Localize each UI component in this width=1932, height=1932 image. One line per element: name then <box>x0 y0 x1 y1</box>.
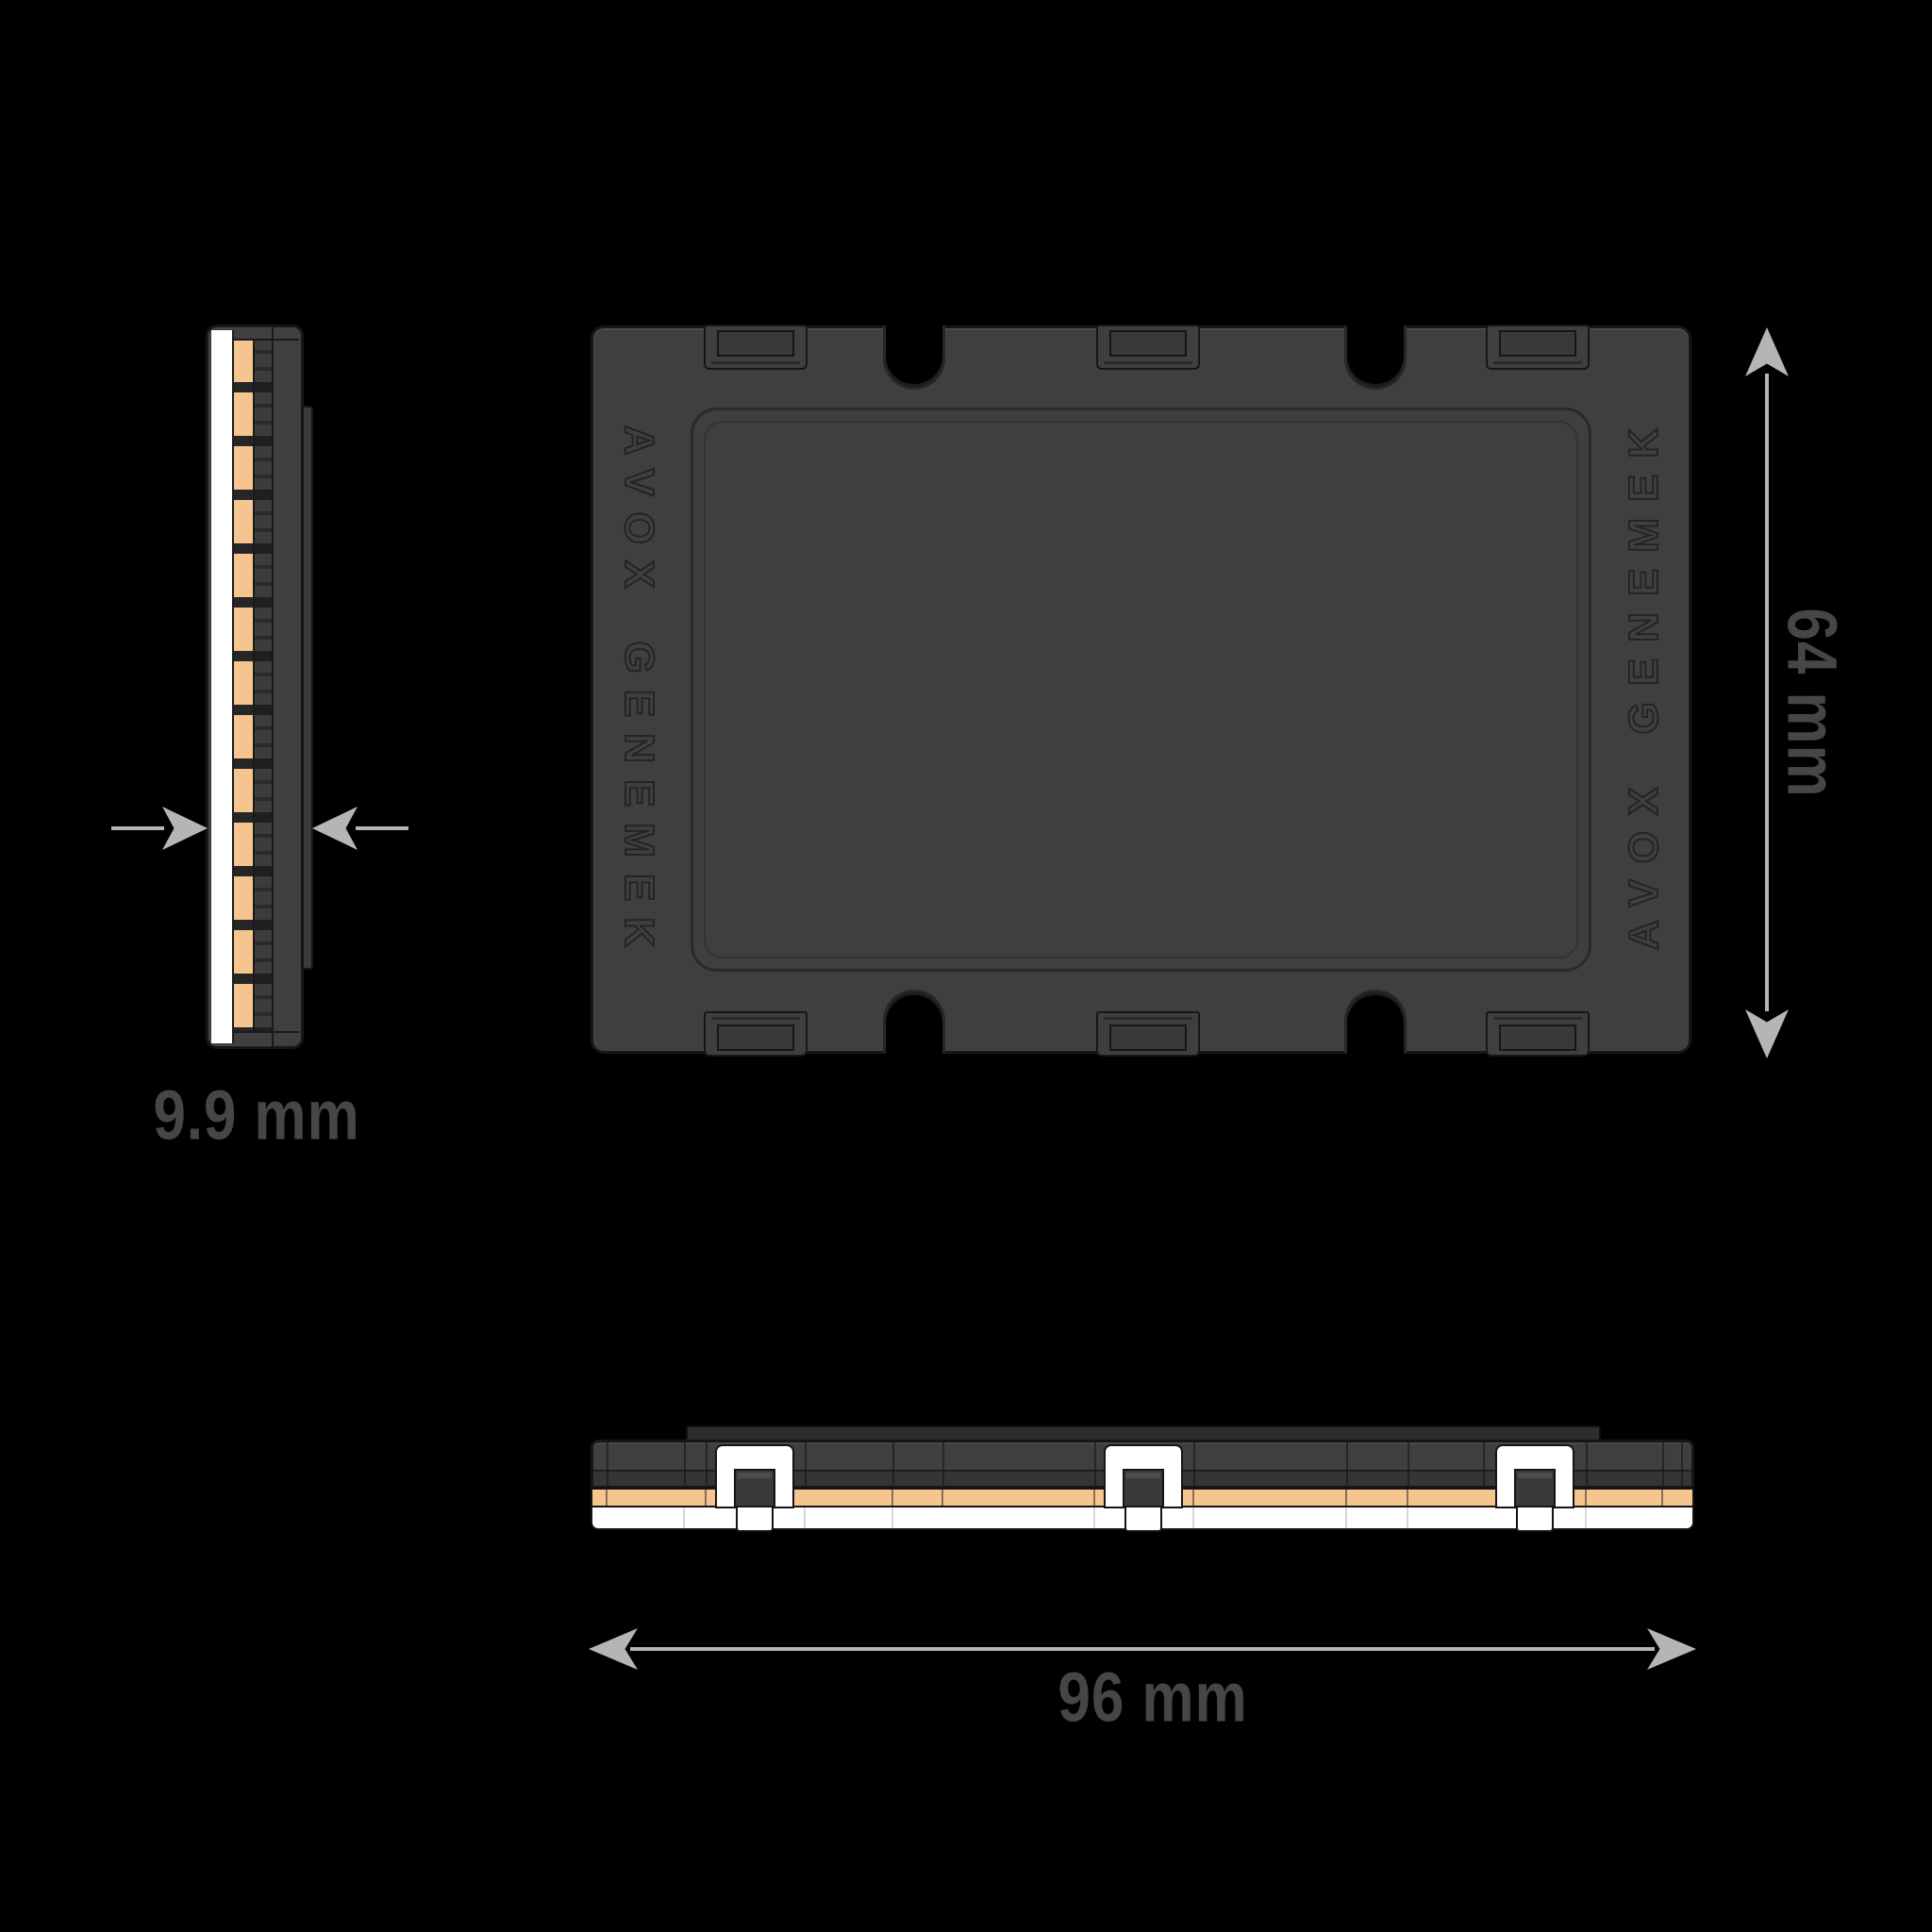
bottom-band-seam <box>1346 1442 1348 1486</box>
height-arrow-bottom-head-icon <box>1745 1009 1789 1058</box>
bottom-connector-seam <box>804 1507 806 1528</box>
thickness-arrow-right-head-icon <box>312 807 358 850</box>
front-panel-inner-line <box>704 421 1578 958</box>
front-top-tab-window <box>717 330 794 357</box>
bottom-band-seam <box>1193 1442 1195 1486</box>
front-bottom-tab <box>1096 1011 1200 1057</box>
bottom-band-seam <box>1094 1442 1096 1486</box>
front-top-tab <box>1486 325 1590 370</box>
height-arrow-line <box>1765 374 1769 1011</box>
front-top-u-notch <box>883 325 945 390</box>
bottom-pcb-seam <box>941 1490 943 1506</box>
thickness-arrow-right-line <box>356 826 408 830</box>
front-top-tab <box>704 325 808 370</box>
side-pcb-strip <box>234 339 253 1033</box>
bottom-band-seam <box>1407 1442 1409 1486</box>
front-bottom-u-notch <box>883 990 945 1054</box>
mounting-clip-tab <box>736 1507 774 1532</box>
height-label: 64 mm <box>1773 608 1853 797</box>
engraving-left: AVOX GENEMEK <box>615 425 662 963</box>
bottom-pcb-seam <box>1407 1490 1408 1506</box>
side-case-profile <box>206 325 304 1049</box>
product-dimension-diagram: 9.9 mm AVOX GENEMEK AVOX GENEMEK 64 mm 9… <box>0 0 1932 1932</box>
front-top-tab-shelf <box>1104 361 1192 364</box>
bottom-band-seam <box>607 1442 608 1486</box>
side-top-seam <box>234 339 299 341</box>
bottom-connector-seam <box>891 1507 893 1528</box>
bottom-band-seam <box>1662 1442 1664 1486</box>
bottom-band-seam <box>1483 1442 1485 1486</box>
front-top-tab-shelf <box>1493 361 1582 364</box>
front-top-tab <box>1096 325 1200 370</box>
width-label: 96 mm <box>1058 1657 1247 1738</box>
bottom-band-seam <box>684 1442 686 1486</box>
bottom-band-seam <box>942 1442 944 1486</box>
front-top-tab-window <box>1499 330 1576 357</box>
front-bottom-tab-window <box>717 1024 794 1051</box>
mounting-clip-tab <box>1516 1507 1554 1532</box>
side-case-strip <box>272 327 301 1046</box>
mounting-clip-window <box>734 1469 775 1507</box>
mounting-clip-window <box>1123 1469 1164 1507</box>
bottom-band-seam <box>706 1442 708 1486</box>
bottom-connector-seam <box>1345 1507 1347 1528</box>
bottom-connector-seam <box>1585 1507 1587 1528</box>
front-bottom-tab-shelf <box>1104 1017 1192 1020</box>
front-bottom-tab-shelf <box>1493 1017 1582 1020</box>
front-top-tab-shelf <box>711 361 800 364</box>
front-bottom-tab-window <box>1109 1024 1187 1051</box>
front-top-u-notch <box>1344 325 1407 390</box>
front-top-tab-window <box>1109 330 1187 357</box>
bottom-pcb-seam <box>1661 1490 1663 1506</box>
bottom-connector-seam <box>1093 1507 1095 1528</box>
bottom-pcb-seam <box>891 1490 893 1506</box>
bottom-connector-seam <box>1407 1507 1408 1528</box>
width-arrow-line <box>630 1647 1655 1651</box>
side-connector-strip <box>211 330 234 1043</box>
bottom-pcb-seam <box>606 1490 608 1506</box>
bottom-pcb-seam <box>1345 1490 1347 1506</box>
engraving-right: AVOX GENEMEK <box>1621 412 1668 950</box>
side-bottom-seam <box>234 1031 299 1033</box>
thickness-arrow-left-head-icon <box>162 807 208 850</box>
mounting-clip-tab <box>1124 1507 1162 1532</box>
bottom-connector-seam <box>1192 1507 1194 1528</box>
bottom-pcb-seam <box>1093 1490 1095 1506</box>
front-bottom-tab <box>704 1011 808 1057</box>
front-bottom-tab <box>1486 1011 1590 1057</box>
mounting-clip-window <box>1514 1469 1556 1507</box>
bottom-connector-seam <box>683 1507 685 1528</box>
bottom-band-seam <box>892 1442 894 1486</box>
bottom-band-seam <box>1586 1442 1588 1486</box>
front-bottom-tab-window <box>1499 1024 1576 1051</box>
bottom-band-seam <box>805 1442 807 1486</box>
side-segment-strip <box>253 339 272 1033</box>
thickness-label: 9.9 mm <box>153 1075 359 1156</box>
bottom-pcb-seam <box>705 1490 707 1506</box>
front-bottom-tab-shelf <box>711 1017 800 1020</box>
front-bottom-u-notch <box>1344 990 1407 1054</box>
bottom-band-seam <box>1681 1442 1683 1486</box>
bottom-pcb-seam <box>1585 1490 1587 1506</box>
thickness-arrow-left-line <box>111 826 164 830</box>
height-arrow-top-head-icon <box>1745 327 1789 376</box>
bottom-pcb-seam <box>1192 1490 1194 1506</box>
